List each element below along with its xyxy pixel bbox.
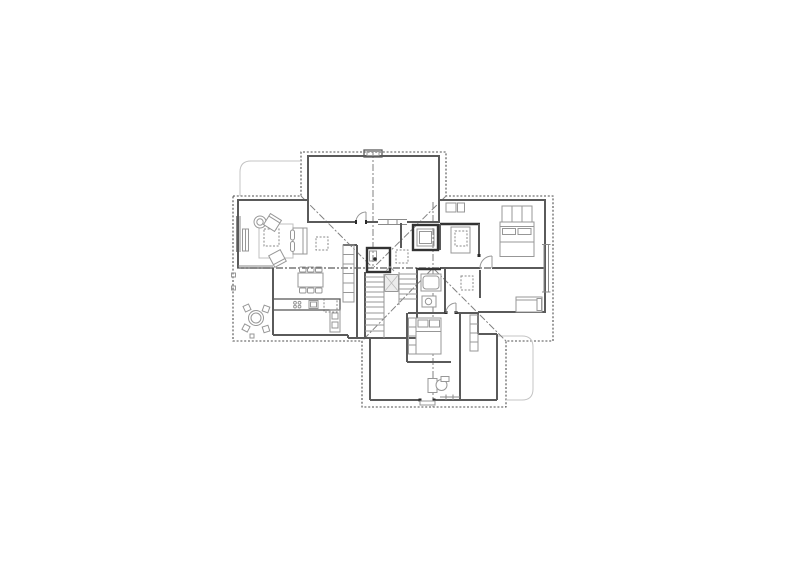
window-mullions bbox=[388, 220, 397, 225]
wet-rooms bbox=[367, 225, 438, 272]
dining-table bbox=[298, 273, 323, 287]
appliance bbox=[332, 313, 338, 319]
path-outline-top-left bbox=[240, 161, 301, 196]
closet-small bbox=[446, 203, 456, 212]
door-jamb bbox=[365, 220, 367, 224]
round-side-table bbox=[254, 216, 266, 228]
terrace-post bbox=[250, 334, 254, 338]
dining-chair bbox=[308, 288, 315, 293]
valley-line-top-right bbox=[374, 196, 446, 267]
appliance bbox=[332, 322, 338, 328]
door-swing-arc bbox=[480, 256, 492, 268]
bedroom-right-top bbox=[500, 206, 534, 257]
bathroom bbox=[421, 274, 441, 307]
bedside-shelf-dividers bbox=[409, 327, 417, 345]
kitchen bbox=[273, 299, 340, 332]
kitchen-sink-basin bbox=[311, 302, 317, 307]
stair-treads-left bbox=[365, 277, 384, 307]
skylight-dashed bbox=[455, 231, 467, 246]
terrace-chair bbox=[242, 324, 250, 332]
door-jamb bbox=[478, 254, 481, 257]
bedroom-right-bottom bbox=[516, 297, 542, 312]
floor-plan-drawing bbox=[0, 0, 800, 565]
skylight-dashed bbox=[461, 276, 473, 290]
skylight-dashed bbox=[396, 250, 408, 263]
terrace-chair bbox=[262, 325, 270, 333]
desk-room bbox=[428, 377, 449, 393]
path-outline-bottom-right bbox=[497, 336, 533, 400]
skylight-dashed bbox=[316, 237, 328, 250]
armchair bbox=[269, 250, 287, 268]
hall-cabinet-shelves bbox=[343, 255, 354, 293]
door-swing-arc bbox=[356, 212, 366, 222]
terrace-chair bbox=[243, 304, 251, 312]
dining-chair bbox=[300, 288, 307, 293]
bedroom-bottom-wing bbox=[409, 315, 479, 354]
cooktop bbox=[294, 301, 301, 308]
valley-line-top-left bbox=[301, 196, 372, 267]
entry-doorstep bbox=[420, 401, 435, 405]
wardrobe bbox=[502, 206, 532, 222]
floor-plan-page bbox=[0, 0, 800, 565]
stair-treads-right bbox=[399, 274, 417, 299]
desk-chair-back bbox=[441, 377, 449, 382]
kitchen-counter bbox=[273, 299, 340, 310]
toilet bbox=[422, 296, 436, 307]
wc-drain bbox=[373, 257, 376, 260]
door-jamb bbox=[355, 220, 357, 224]
staircase bbox=[343, 245, 417, 338]
headboard bbox=[500, 222, 534, 227]
shower-tray-inner bbox=[420, 232, 432, 244]
kitchen-south-wall bbox=[273, 335, 370, 338]
coffee-table-dashed bbox=[264, 229, 279, 246]
living-room bbox=[243, 214, 308, 268]
sofa bbox=[291, 228, 308, 254]
dining-area bbox=[298, 267, 323, 293]
corridor-shelving-dividers bbox=[470, 324, 478, 342]
dining-chair bbox=[316, 288, 323, 293]
terrace bbox=[232, 273, 270, 338]
terrace-chair bbox=[262, 305, 270, 313]
single-bed bbox=[516, 297, 542, 312]
closet-small bbox=[458, 203, 465, 212]
